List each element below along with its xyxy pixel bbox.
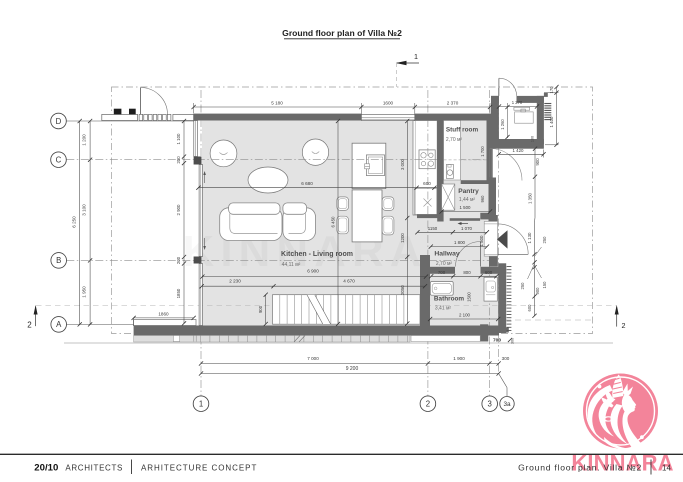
svg-text:1 500: 1 500 bbox=[460, 205, 472, 210]
svg-text:1 420: 1 420 bbox=[513, 148, 525, 153]
svg-text:D: D bbox=[56, 117, 62, 126]
svg-text:1 350: 1 350 bbox=[528, 192, 533, 204]
svg-text:2 370: 2 370 bbox=[447, 101, 459, 106]
svg-text:Hallway: Hallway bbox=[434, 251, 460, 258]
svg-text:600: 600 bbox=[527, 304, 532, 312]
svg-text:Pantry: Pantry bbox=[458, 188, 479, 195]
svg-text:960: 960 bbox=[480, 195, 485, 203]
svg-text:1,44 м²: 1,44 м² bbox=[459, 197, 476, 203]
svg-text:250: 250 bbox=[520, 282, 525, 290]
svg-text:200: 200 bbox=[176, 256, 181, 264]
svg-text:2 900: 2 900 bbox=[176, 204, 181, 216]
svg-text:1 700: 1 700 bbox=[480, 146, 485, 157]
svg-text:200: 200 bbox=[176, 156, 181, 164]
svg-text:300: 300 bbox=[511, 338, 515, 344]
svg-text:A: A bbox=[56, 320, 62, 329]
svg-text:1200: 1200 bbox=[400, 233, 405, 243]
svg-text:Kitchen - Living room: Kitchen - Living room bbox=[281, 251, 353, 258]
svg-text:1 070: 1 070 bbox=[461, 226, 473, 231]
svg-text:1 950: 1 950 bbox=[82, 286, 87, 298]
svg-text:2: 2 bbox=[622, 321, 626, 330]
svg-text:ARCHITECTS: ARCHITECTS bbox=[65, 463, 123, 472]
svg-text:20/10: 20/10 bbox=[34, 463, 58, 474]
svg-text:1: 1 bbox=[414, 52, 418, 61]
svg-text:1850: 1850 bbox=[176, 288, 181, 298]
svg-text:1 100: 1 100 bbox=[176, 133, 181, 145]
svg-text:150: 150 bbox=[542, 281, 547, 289]
svg-text:5 180: 5 180 bbox=[271, 101, 283, 106]
svg-text:1500: 1500 bbox=[466, 292, 471, 302]
svg-text:3,41 м²: 3,41 м² bbox=[435, 305, 452, 311]
svg-text:1 260: 1 260 bbox=[500, 119, 505, 130]
svg-text:600: 600 bbox=[485, 270, 493, 275]
svg-text:300: 300 bbox=[502, 356, 510, 361]
svg-text:1 200: 1 200 bbox=[82, 134, 87, 146]
svg-text:Bathroom: Bathroom bbox=[434, 296, 464, 303]
svg-text:1860: 1860 bbox=[158, 311, 169, 316]
svg-text:800: 800 bbox=[463, 270, 471, 275]
svg-text:6 900: 6 900 bbox=[307, 268, 319, 273]
svg-text:100: 100 bbox=[531, 136, 535, 142]
svg-text:1600: 1600 bbox=[383, 101, 394, 106]
svg-text:ARHITECTURE CONCEPT: ARHITECTURE CONCEPT bbox=[141, 463, 257, 472]
svg-text:3: 3 bbox=[488, 400, 492, 409]
svg-text:14: 14 bbox=[662, 463, 671, 472]
svg-text:1 900: 1 900 bbox=[453, 356, 465, 361]
svg-text:6 450: 6 450 bbox=[331, 216, 336, 228]
svg-text:900: 900 bbox=[535, 287, 540, 295]
svg-text:Ground floor plan. Villa №2: Ground floor plan. Villa №2 bbox=[518, 463, 642, 473]
svg-text:1 500: 1 500 bbox=[479, 235, 484, 247]
svg-text:1: 1 bbox=[199, 400, 203, 409]
svg-text:2: 2 bbox=[426, 400, 430, 409]
svg-text:1 400: 1 400 bbox=[549, 116, 554, 128]
svg-text:1 130: 1 130 bbox=[527, 232, 532, 244]
svg-text:4 670: 4 670 bbox=[343, 278, 355, 283]
svg-text:900: 900 bbox=[258, 305, 263, 313]
svg-text:2: 2 bbox=[27, 321, 32, 330]
svg-text:700: 700 bbox=[438, 270, 446, 275]
svg-text:1150: 1150 bbox=[428, 226, 438, 231]
svg-text:2,70 м²: 2,70 м² bbox=[446, 137, 463, 143]
svg-text:6 680: 6 680 bbox=[301, 181, 313, 186]
svg-text:250: 250 bbox=[542, 236, 547, 244]
svg-text:900: 900 bbox=[535, 158, 540, 166]
svg-text:7 000: 7 000 bbox=[307, 356, 319, 361]
svg-text:600: 600 bbox=[423, 181, 431, 186]
svg-text:3a: 3a bbox=[503, 401, 511, 408]
svg-text:2050: 2050 bbox=[400, 285, 405, 295]
svg-text:700: 700 bbox=[493, 338, 501, 344]
svg-text:C: C bbox=[56, 156, 62, 165]
svg-text:Ground floor plan of Villa №2: Ground floor plan of Villa №2 bbox=[282, 28, 402, 38]
svg-text:2 230: 2 230 bbox=[229, 278, 241, 283]
svg-text:2,70 м²: 2,70 м² bbox=[436, 261, 453, 267]
svg-text:Stuff room: Stuff room bbox=[446, 127, 479, 134]
svg-text:9 200: 9 200 bbox=[346, 366, 359, 372]
svg-text:3 100: 3 100 bbox=[82, 204, 87, 216]
svg-text:1 270: 1 270 bbox=[512, 100, 523, 105]
svg-text:2 100: 2 100 bbox=[459, 313, 471, 318]
svg-text:3 000: 3 000 bbox=[400, 158, 405, 170]
svg-text:B: B bbox=[56, 256, 61, 265]
svg-text:6 250: 6 250 bbox=[71, 216, 76, 228]
svg-text:1 800: 1 800 bbox=[454, 240, 466, 245]
svg-text:44,11 м²: 44,11 м² bbox=[282, 262, 301, 268]
